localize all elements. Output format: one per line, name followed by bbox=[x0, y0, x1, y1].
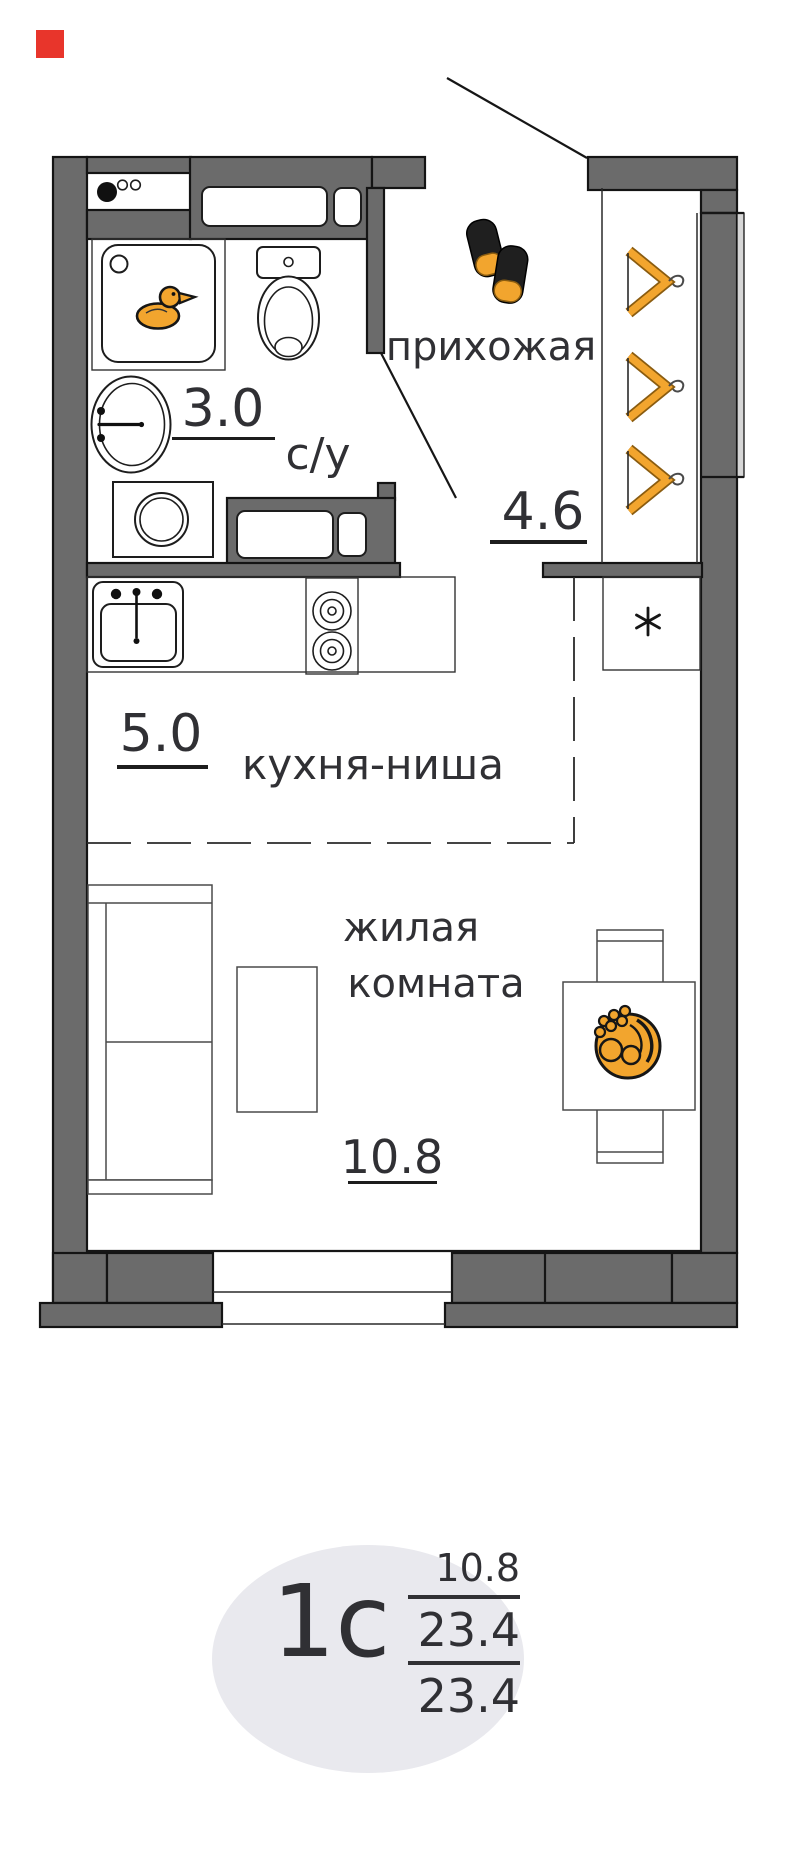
bottom-wall-l2 bbox=[107, 1253, 213, 1303]
bottom-wall-r1 bbox=[452, 1253, 672, 1303]
area-underline bbox=[348, 1181, 437, 1184]
bathroom-label: с/у bbox=[285, 433, 350, 477]
bathroom-south-wall bbox=[87, 563, 400, 577]
right-corner-block bbox=[701, 190, 737, 213]
dining-set bbox=[563, 930, 695, 1163]
living-label-line1: жилая bbox=[343, 908, 479, 948]
hanger-icon bbox=[628, 356, 683, 418]
bathroom-area: 3.0 bbox=[182, 383, 265, 435]
living-area: 10.8 bbox=[341, 1134, 443, 1180]
badge-living-area: 10.8 bbox=[408, 1549, 520, 1595]
parapet-left bbox=[40, 1303, 222, 1327]
living-label-line2: комната bbox=[347, 964, 524, 1004]
toilet bbox=[257, 247, 320, 360]
hallway-area: 4.6 bbox=[502, 486, 585, 538]
bed bbox=[88, 885, 212, 1194]
kitchen-label: кухня-ниша bbox=[242, 744, 504, 786]
top-right-wall bbox=[588, 157, 737, 190]
area-underline bbox=[117, 765, 208, 769]
shaft-valves-icon bbox=[97, 180, 140, 202]
hanger-icon bbox=[628, 251, 683, 313]
washing-machine bbox=[113, 482, 213, 557]
entry-door-swing bbox=[447, 78, 587, 158]
floorplan-drawing bbox=[0, 0, 800, 1400]
entry-door-leaf bbox=[202, 187, 361, 226]
stove bbox=[306, 578, 358, 674]
unit-areas: 10.8 23.4 23.4 bbox=[408, 1549, 520, 1727]
area-underline bbox=[172, 437, 275, 440]
top-wall-segment bbox=[372, 157, 425, 188]
kitchen-area: 5.0 bbox=[120, 708, 203, 760]
unit-type: 1с bbox=[272, 1572, 391, 1672]
nightstand bbox=[237, 967, 317, 1112]
right-wall bbox=[701, 213, 737, 1253]
top-wall-thin bbox=[87, 157, 191, 173]
badge-total-area: 23.4 bbox=[408, 1665, 520, 1727]
closet-star-icon bbox=[637, 608, 660, 635]
side-window-strip bbox=[737, 213, 744, 477]
bathroom-door-leaf bbox=[237, 511, 366, 558]
washbasin bbox=[92, 377, 171, 473]
hanger-icon bbox=[628, 449, 683, 511]
area-underline bbox=[490, 540, 587, 544]
bottom-wall-r2 bbox=[672, 1253, 737, 1303]
hallway-label: прихожая bbox=[386, 327, 596, 367]
bathroom-partition bbox=[367, 188, 384, 353]
shaft-wall bbox=[87, 210, 191, 239]
kitchen-sink bbox=[93, 582, 183, 667]
badge-area-excl-balcony: 23.4 bbox=[408, 1599, 520, 1661]
hall-closet bbox=[603, 577, 700, 670]
left-wall bbox=[53, 157, 87, 1303]
floorplan-page: 3.0 с/у прихожая 4.6 5.0 кухня-ниша жила… bbox=[0, 0, 800, 1853]
bathroom-door-swing bbox=[381, 353, 456, 498]
wardrobe-south-wall bbox=[543, 563, 702, 577]
slippers-icon bbox=[464, 217, 530, 305]
bottom-wall-l1 bbox=[53, 1253, 107, 1303]
parapet-right bbox=[445, 1303, 737, 1327]
